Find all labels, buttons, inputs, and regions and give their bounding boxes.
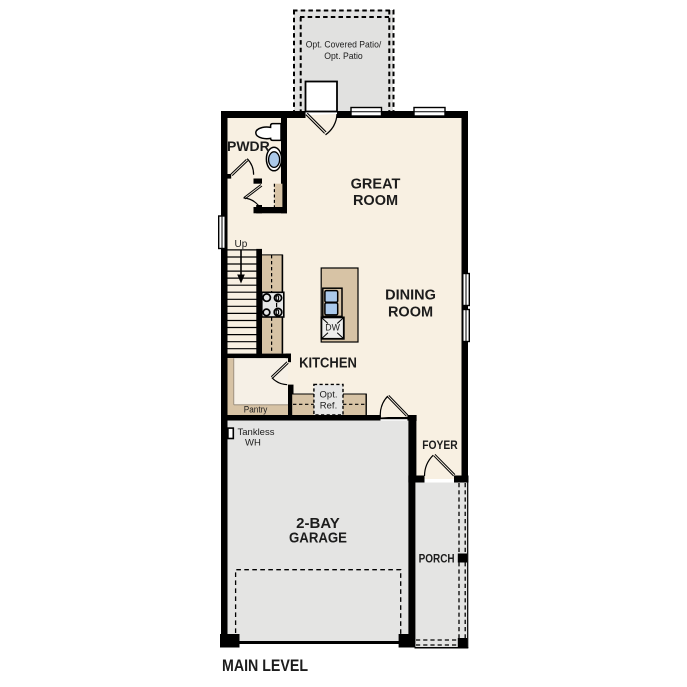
svg-text:DINING: DINING [385,288,436,304]
svg-text:PORCH: PORCH [419,553,455,565]
svg-text:Opt. Covered Patio/: Opt. Covered Patio/ [306,40,382,51]
svg-text:PWDR: PWDR [227,138,270,154]
svg-text:Pantry: Pantry [244,404,268,414]
svg-text:GARAGE: GARAGE [289,530,347,547]
svg-text:Tankless: Tankless [238,427,275,438]
svg-text:ROOM: ROOM [353,193,398,209]
svg-text:FOYER: FOYER [422,440,458,452]
svg-text:Opt.: Opt. [320,390,338,401]
svg-text:Opt. Patio: Opt. Patio [324,51,363,62]
svg-text:MAIN LEVEL: MAIN LEVEL [222,656,308,675]
svg-text:Up: Up [235,239,248,250]
svg-text:DW: DW [325,322,340,332]
svg-text:ROOM: ROOM [388,305,433,321]
svg-text:WH: WH [245,437,261,448]
svg-text:GREAT: GREAT [351,177,401,193]
svg-text:Ref.: Ref. [320,401,337,412]
svg-text:KITCHEN: KITCHEN [299,356,357,372]
